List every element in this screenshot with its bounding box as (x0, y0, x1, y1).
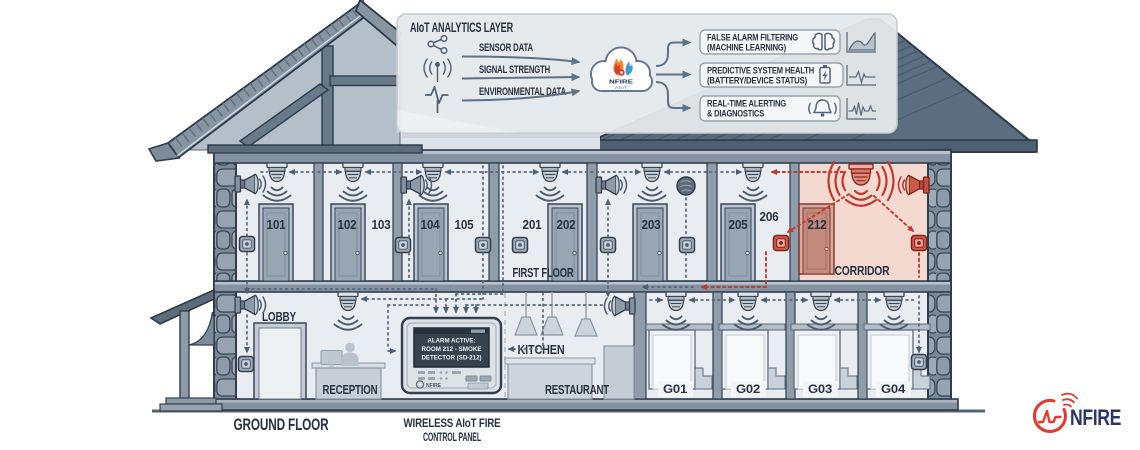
svg-text:SIGNAL STRENGTH: SIGNAL STRENGTH (479, 64, 550, 76)
svg-text:(BATTERY/DEVICE STATUS): (BATTERY/DEVICE STATUS) (707, 76, 807, 87)
svg-text:NFIRE: NFIRE (426, 383, 442, 389)
svg-text:105: 105 (455, 217, 474, 232)
svg-text:& DIAGNOSTICS: & DIAGNOSTICS (707, 109, 765, 120)
svg-text:101: 101 (267, 217, 286, 232)
svg-text:CONTROL PANEL: CONTROL PANEL (423, 430, 481, 444)
svg-text:ENVIRONMENTAL DATA: ENVIRONMENTAL DATA (479, 86, 566, 98)
svg-text:202: 202 (557, 217, 576, 232)
svg-text:(MACHINE LEARNING): (MACHINE LEARNING) (707, 43, 786, 54)
svg-text:G01: G01 (663, 384, 688, 396)
svg-text:G02: G02 (736, 384, 760, 396)
svg-text:103: 103 (372, 217, 391, 232)
svg-text:FIRST FLOOR: FIRST FLOOR (513, 266, 574, 280)
svg-text:AIoT: AIoT (615, 85, 629, 90)
svg-text:205: 205 (729, 217, 748, 232)
svg-text:AIoT ANALYTICS LAYER: AIoT ANALYTICS LAYER (410, 20, 513, 35)
svg-text:RECEPTION: RECEPTION (323, 383, 378, 397)
svg-text:G03: G03 (808, 384, 832, 396)
svg-text:RESTAURANT: RESTAURANT (545, 383, 609, 397)
svg-text:G04: G04 (881, 384, 906, 396)
svg-text:201: 201 (523, 217, 542, 232)
svg-text:ALARM ACTIVE:: ALARM ACTIVE: (428, 338, 476, 345)
svg-text:NFIRE: NFIRE (1070, 405, 1121, 430)
svg-text:102: 102 (338, 217, 357, 232)
svg-text:DETECTOR (SD-212): DETECTOR (SD-212) (422, 355, 482, 362)
svg-text:GROUND FLOOR: GROUND FLOOR (234, 416, 329, 434)
svg-text:206: 206 (760, 209, 779, 224)
svg-text:CORRIDOR: CORRIDOR (835, 263, 891, 278)
svg-text:ROOM 212 - SMOKE: ROOM 212 - SMOKE (422, 346, 483, 353)
svg-text:212: 212 (808, 217, 827, 232)
svg-text:SENSOR DATA: SENSOR DATA (479, 42, 533, 54)
svg-text:LOBBY: LOBBY (262, 309, 296, 324)
svg-text:203: 203 (642, 217, 661, 232)
svg-text:104: 104 (421, 217, 441, 232)
svg-text:WIRELESS AIoT FIRE: WIRELESS AIoT FIRE (404, 416, 501, 430)
